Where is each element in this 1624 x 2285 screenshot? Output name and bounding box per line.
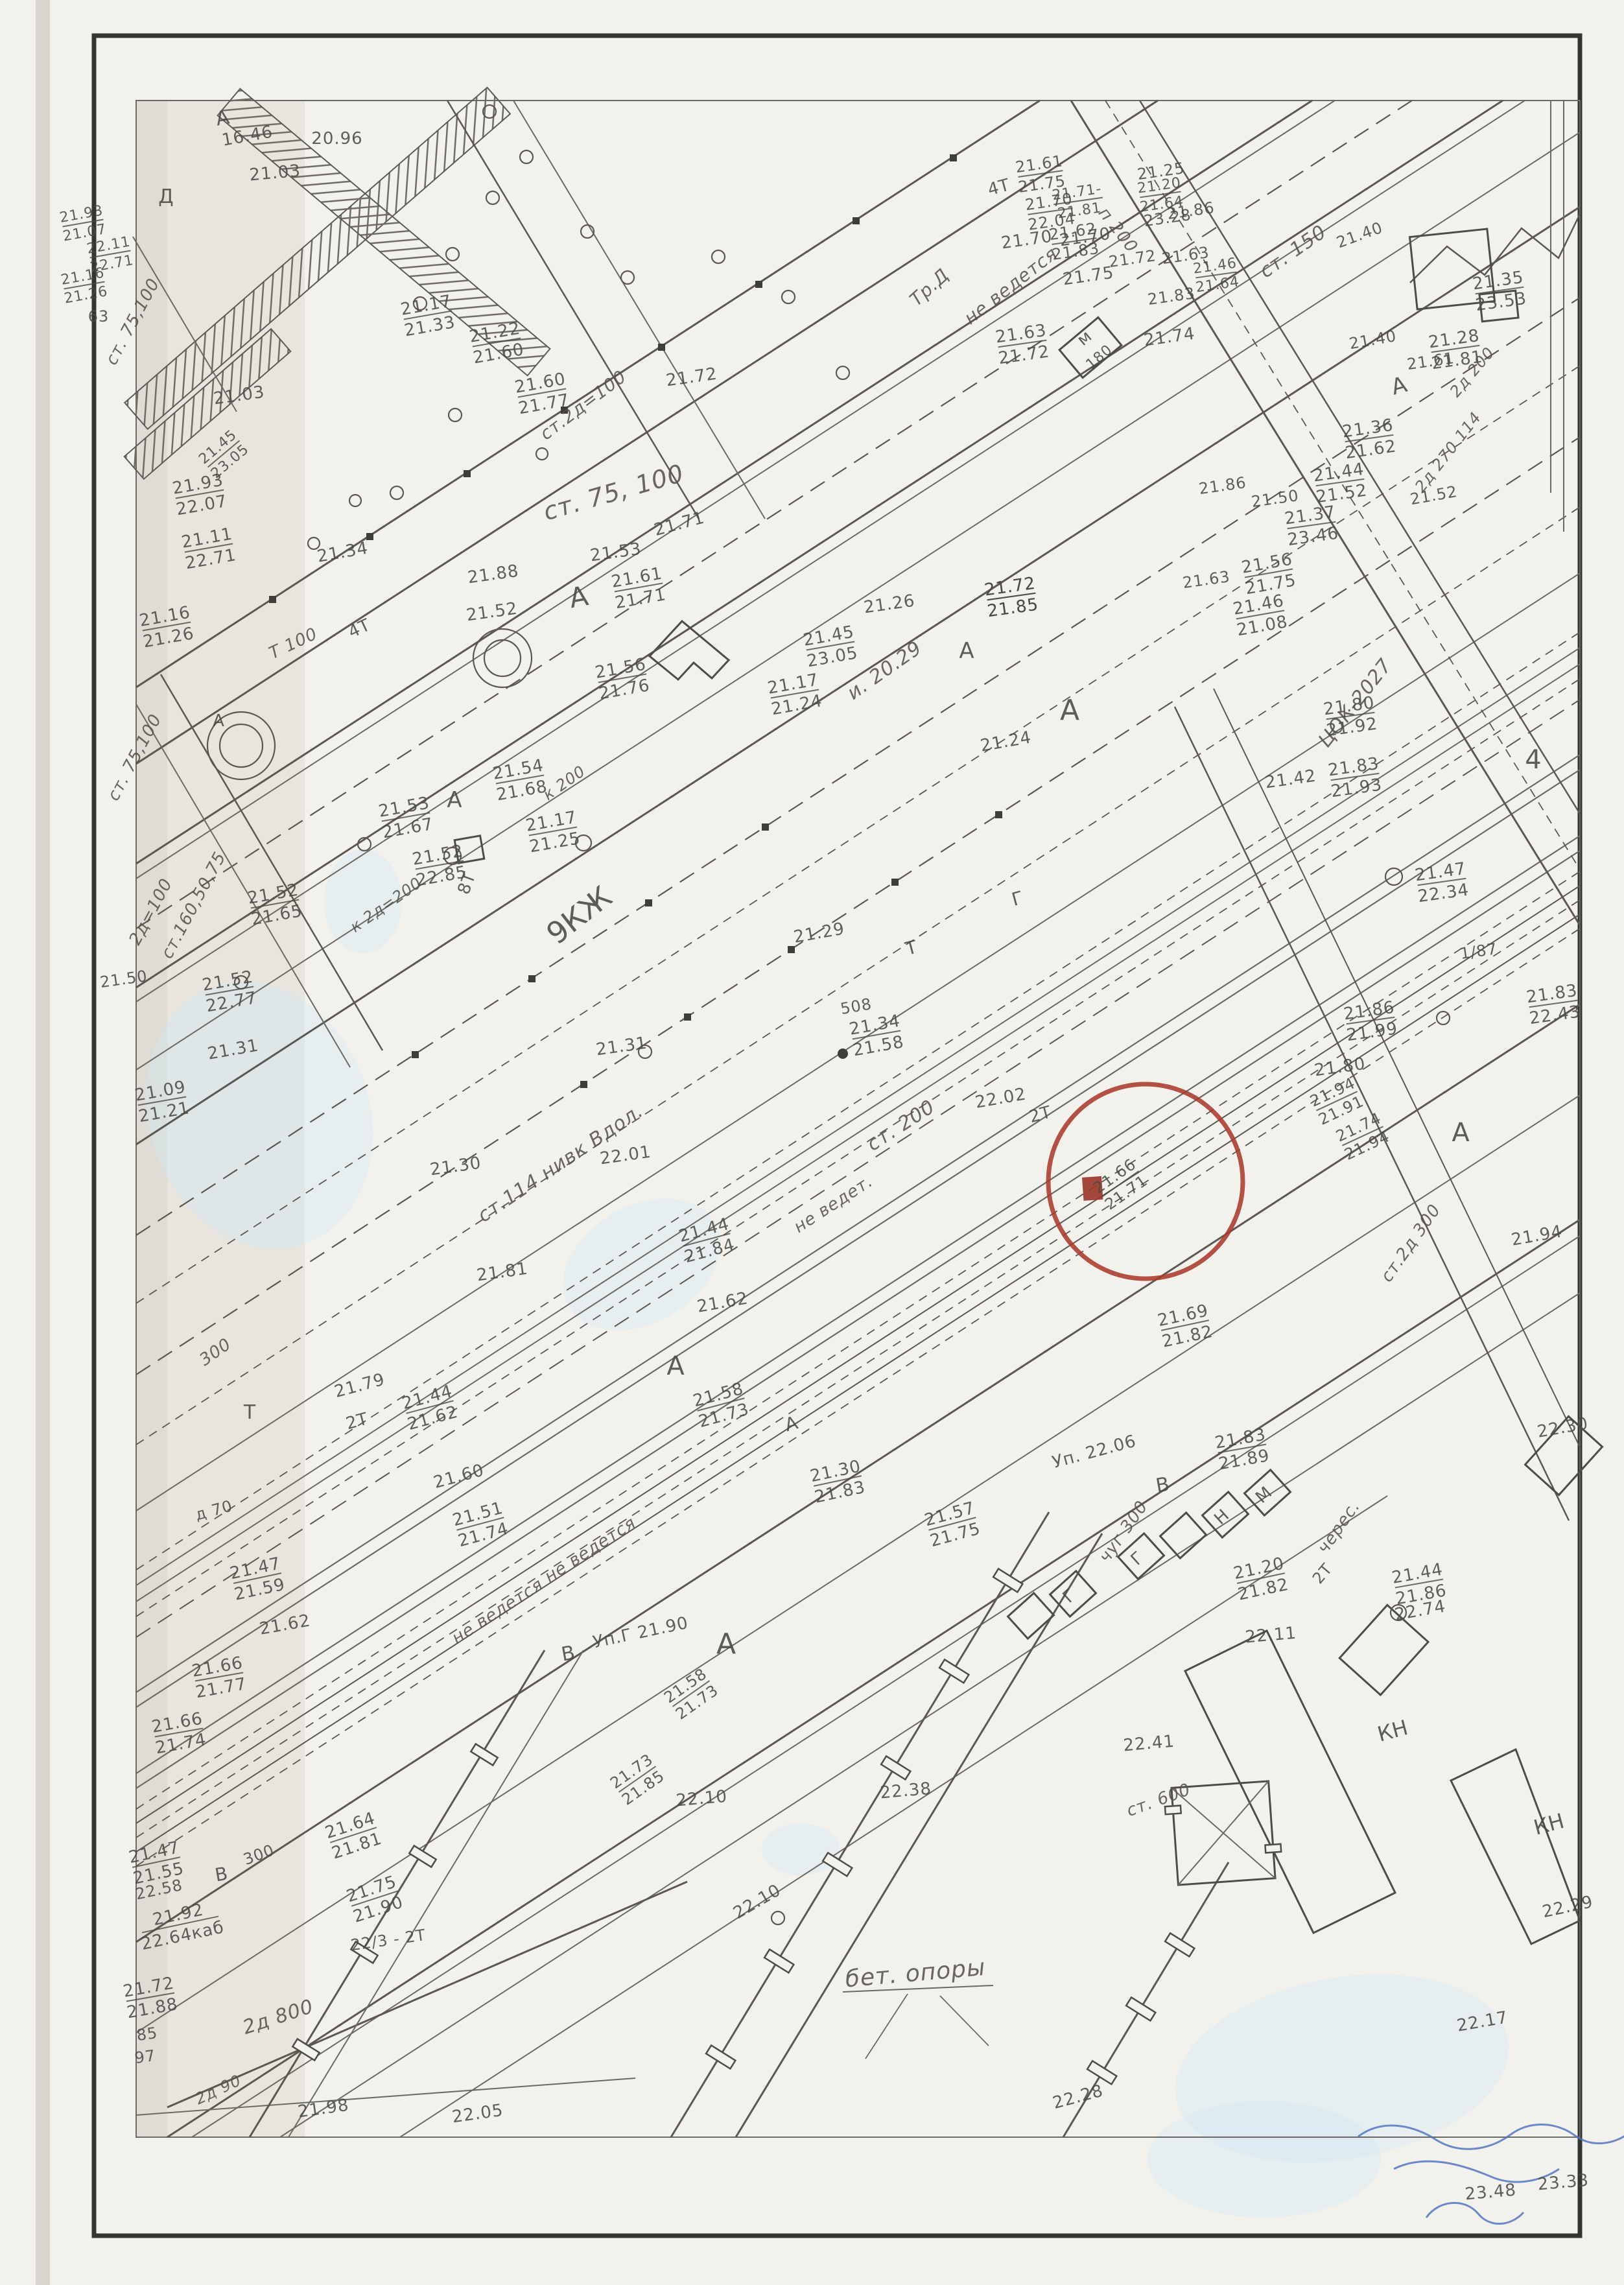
pipeline-lines (471, 1744, 497, 1765)
map-label: А (447, 787, 462, 813)
map-label: 21.75 (1061, 263, 1115, 290)
scan-artifacts (1147, 2101, 1381, 2218)
scan-artifacts (36, 0, 50, 2285)
utility-pole-dots (788, 946, 795, 953)
scan-artifacts (539, 1172, 744, 1357)
map-label: 22/3 - 2Т (349, 1926, 427, 1954)
map-label: Уп.Г 21.90 (591, 1613, 690, 1652)
map-label: 4Т (346, 615, 374, 643)
map-label: 22.11 (1244, 1624, 1297, 1648)
utility-pole-dots (891, 879, 899, 886)
elevation-fraction: 21.5821.73 (691, 1379, 751, 1432)
map-label: А (1452, 1118, 1470, 1148)
map-label: 21.88 (466, 562, 520, 588)
map-label: 21.50 (1250, 486, 1300, 511)
utility-pole-dots (269, 596, 276, 603)
map-label: 20.96 (311, 129, 362, 148)
map-label: 2Т (1027, 1102, 1053, 1127)
utility-pole-dots (755, 281, 762, 288)
map-label: В (559, 1642, 576, 1666)
map-label: 9КЖ (540, 879, 618, 951)
pipeline-lines (865, 1994, 908, 2059)
map-label: не ведет. (790, 1172, 877, 1237)
survey-circle-markers (836, 366, 849, 379)
elevation-fraction: 21.5621.75 (1240, 550, 1298, 599)
map-label: А (716, 1628, 736, 1661)
map-label: черес. (1314, 1497, 1365, 1557)
elevation-fraction: 21.3621.62 (1341, 416, 1397, 463)
map-label: 21.34 (316, 538, 370, 566)
pipeline-lines (764, 1949, 794, 1972)
road-lines (136, 101, 1412, 929)
map-label: А (213, 711, 224, 731)
elevation-fraction: 21.4621.08 (1232, 591, 1289, 641)
pipeline-lines (409, 1845, 436, 1867)
map-label: 21.53 (589, 539, 642, 566)
elevation-fraction: 21.1721.25 (524, 808, 582, 857)
pipeline-lines (1126, 1997, 1155, 2020)
elevation-fraction: 21.2021.64 (1136, 175, 1185, 216)
map-label: 23.48 (1464, 2181, 1517, 2205)
utility-pole-dots (464, 470, 471, 477)
utility-pole-dots (580, 1081, 587, 1088)
elevation-fraction: 21.5321.67 (377, 794, 435, 843)
elevation-fraction: 21.6221.83 (1048, 219, 1100, 264)
elevation-fraction: 21.7321.85 (607, 1750, 668, 1809)
map-label: 21.30 (429, 1154, 482, 1180)
survey-circle-markers (771, 1912, 784, 1924)
elevation-fraction: 21.5821.73 (661, 1664, 722, 1723)
map-label: Т (902, 936, 920, 960)
map-label: 21.72 (665, 364, 718, 391)
utility-pole-dots (950, 154, 957, 161)
map-label: Уп. 22.06 (1050, 1432, 1138, 1473)
elevation-fraction: 21.3421.58 (848, 1012, 906, 1061)
map-label: Г (1127, 1548, 1148, 1570)
map-label: 21.40 (1334, 219, 1385, 252)
elevation-fraction: 21.5421.68 (491, 756, 549, 805)
ink-scrawl (1426, 2203, 1524, 2223)
map-label: 21.40 (1348, 327, 1398, 353)
buildings (1008, 1593, 1054, 1639)
map-label: Д (158, 185, 173, 208)
utility-pole-dots (412, 1051, 419, 1058)
map-label: 508 (839, 995, 873, 1018)
map-label: А (1389, 372, 1410, 401)
pipeline-lines (706, 2045, 735, 2068)
map-label: 22.02 (974, 1084, 1028, 1112)
survey-circle-markers (486, 191, 499, 204)
utility-pole-dots (762, 823, 769, 831)
scan-artifacts (762, 1823, 840, 1875)
buildings (1185, 1631, 1395, 1933)
map-label: А (567, 580, 591, 614)
map-label: 22.10 (675, 1787, 728, 1811)
map-label: 21.86 (1197, 473, 1247, 498)
map-label: к 200 (540, 762, 589, 804)
elevation-fraction: 21.5721.75 (923, 1498, 983, 1551)
survey-circle-markers (390, 486, 403, 499)
map-label: Тр.Д (906, 264, 954, 310)
buildings (484, 640, 521, 676)
utility-pole-dots (645, 899, 652, 906)
utility-pole-dots (658, 344, 665, 351)
elevation-fraction: 21.3723.46 (1283, 503, 1339, 550)
utility-pole-dots (838, 1048, 848, 1059)
map-label: А (783, 1412, 800, 1436)
survey-circle-markers (520, 150, 533, 163)
map-label: 22.28 (1051, 2081, 1105, 2114)
map-label: 21.80 (1313, 1054, 1367, 1081)
elevation-fraction: 21.71-21.81 (1051, 181, 1105, 222)
map-label: ст. 75, 100 (540, 459, 687, 527)
map-label: 21.26 (862, 591, 916, 618)
pipeline-lines (671, 1512, 1049, 2137)
road-lines (1214, 689, 1580, 1447)
elevation-fraction: 21.1721.33 (399, 292, 457, 341)
elevation-fraction: 21.1621.26 (60, 265, 109, 307)
map-label: Г (1059, 1586, 1080, 1607)
road-lines (136, 851, 1580, 1788)
map-label: 22.38 (879, 1779, 932, 1803)
elevation-fraction: 21.8322.43 (1525, 981, 1581, 1028)
map-label: 63 (88, 307, 110, 326)
map-label: 1/87 (1459, 940, 1498, 963)
map-label: Н (1210, 1506, 1233, 1528)
map-label: 2д 270 114 (1411, 408, 1485, 495)
elevation-fraction: 21.4421.62 (400, 1382, 460, 1434)
map-label: КН (1375, 1715, 1411, 1747)
elevation-fraction: 21.1721.24 (766, 670, 824, 720)
pipeline-lines (288, 1650, 583, 2137)
survey-circle-markers (446, 248, 459, 261)
map-label: 21.60 (432, 1461, 486, 1493)
map-label: 4Т (985, 175, 1012, 200)
buildings (1265, 1844, 1281, 1853)
pipeline-lines (993, 1569, 1022, 1592)
elevation-fraction: 21.6421.81 (323, 1808, 384, 1863)
map-label: 22.29 (1540, 1892, 1595, 1922)
survey-circle-markers (536, 448, 548, 460)
elevation-fraction: 21.4421.52 (1312, 460, 1368, 507)
pipeline-lines (940, 1996, 989, 2046)
survey-circle-markers (782, 290, 795, 303)
survey-circle-markers (1385, 868, 1402, 885)
utility-pole-dots (853, 217, 860, 224)
elevation-fraction: 21.5121.74 (451, 1498, 511, 1551)
map-label: 21.24 (979, 728, 1033, 755)
ink-scrawl (1394, 2161, 1559, 2182)
map-label: не ведется (541, 1513, 640, 1587)
pipeline-lines (1165, 1933, 1194, 1956)
survey-circle-markers (349, 495, 361, 506)
pipeline-lines (1087, 2061, 1116, 2084)
map-label: ст. 150 (1255, 220, 1330, 283)
elevation-fraction: 21.6321.72 (994, 321, 1050, 368)
map-label: А (959, 638, 974, 664)
buildings (473, 629, 532, 687)
map-label: КН (1531, 1808, 1567, 1840)
map-label: ст. 600 (1124, 1780, 1194, 1821)
utility-pole-dots (366, 533, 373, 540)
map-label: 22.01 (598, 1142, 652, 1169)
elevation-fraction: 21.5621.76 (594, 655, 652, 704)
map-label: чуг 300 (1096, 1497, 1152, 1567)
map-label: 21.79 (333, 1370, 387, 1403)
survey-circle-markers (449, 408, 462, 421)
map-label: 22.41 (1122, 1732, 1175, 1756)
utility-pole-dots (995, 811, 1002, 818)
pipeline-lines (939, 1659, 969, 1683)
elevation-fraction: 21.6921.82 (1156, 1301, 1215, 1351)
map-label: 21.42 (1264, 766, 1317, 793)
elevation-fraction: 21.7221.85 (983, 574, 1039, 621)
pipeline-lines (881, 1756, 910, 1779)
map-label: 21.71 (652, 508, 707, 541)
elevation-fraction: 21.4523.05 (802, 622, 860, 672)
map-label: не ведется (960, 243, 1062, 329)
map-label: 21.81 (475, 1259, 529, 1286)
map-label: 21.63 (1181, 567, 1231, 592)
elevation-fraction: 21.2821.81 (1427, 326, 1483, 373)
map-label: м (1074, 327, 1096, 350)
map-label: 2Т (344, 1409, 370, 1434)
map-label: 22.10 (730, 1880, 784, 1923)
elevation-fraction: 21.4722.34 (1413, 859, 1470, 906)
map-label: А (666, 1351, 685, 1381)
elevation-fraction: 21.4621.64 (1192, 255, 1241, 296)
map-label: 21.29 (792, 919, 846, 947)
map-label: 2Т (1309, 1560, 1336, 1587)
road-lines (513, 101, 765, 519)
map-canvas: А16.4620.9621.03Д63ст. 75,10021.0321.722… (0, 0, 1624, 2285)
road-lines (136, 101, 1312, 864)
elevation-fraction: 21.2021.82 (1232, 1554, 1291, 1604)
map-label: Т (243, 1401, 256, 1424)
buildings (1160, 1513, 1206, 1558)
map-label: 97 (134, 2046, 157, 2067)
map-label: 85 (135, 2024, 159, 2044)
buildings (650, 621, 729, 680)
survey-circle-markers (621, 271, 634, 284)
elevation-fraction: 21.6121.71 (610, 564, 668, 613)
elevation-fraction: 21.3021.83 (808, 1456, 867, 1507)
survey-circle-markers (712, 250, 725, 263)
map-label: Г (1009, 887, 1026, 910)
map-label: 4 (1525, 745, 1541, 775)
elevation-fraction: 21.8321.89 (1214, 1425, 1271, 1474)
map-label: А (1060, 694, 1079, 727)
elevation-fraction: 21.7521.90 (344, 1872, 406, 1926)
utility-pole-dots (684, 1013, 691, 1021)
map-label: 21.62 (696, 1288, 749, 1316)
utility-pole-dots (528, 975, 535, 982)
map-label: 21.94 (1510, 1222, 1564, 1249)
map-label: 22.05 (451, 2101, 504, 2127)
